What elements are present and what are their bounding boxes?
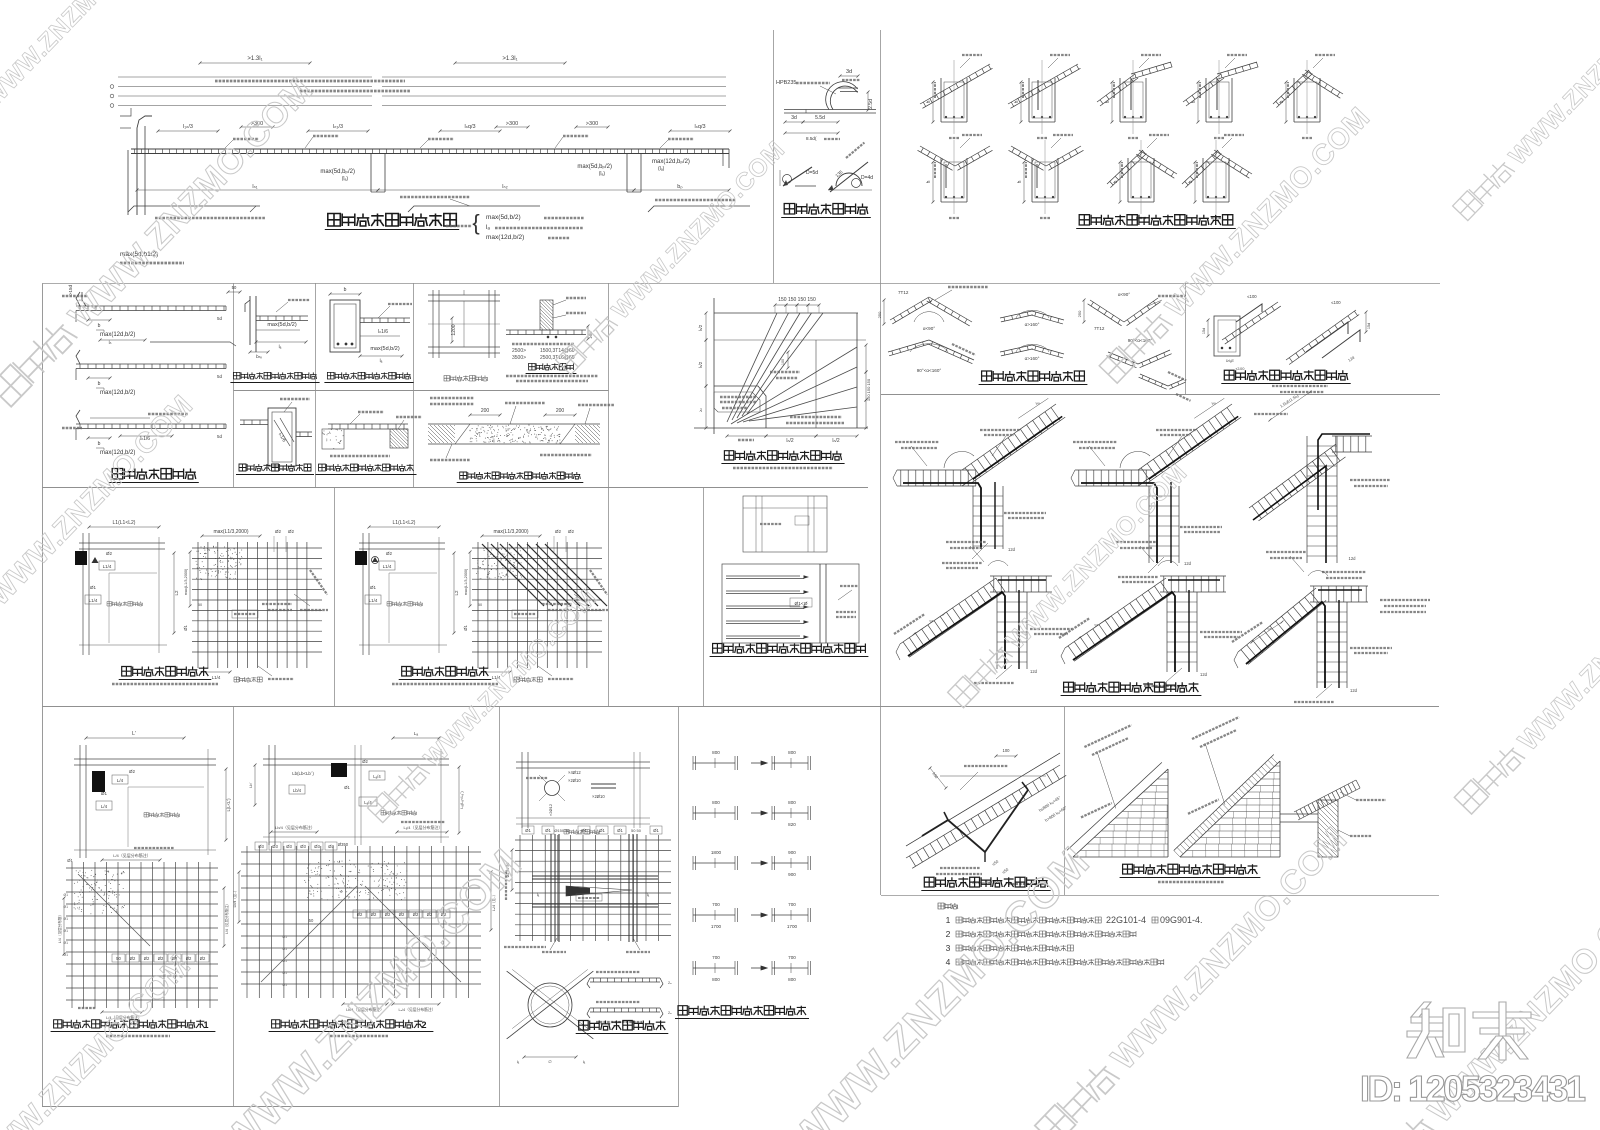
svg-text:L/4（见层分布筋注）: L/4（见层分布筋注）: [113, 852, 151, 858]
svg-text:Ø1: Ø1: [183, 625, 188, 631]
svg-text:Ø2: Ø2: [386, 551, 393, 556]
svg-text:Ø1: Ø1: [282, 959, 287, 963]
svg-text:lₙq/3: lₙq/3: [694, 124, 705, 130]
svg-text:Ø1<Ø: Ø1<Ø: [795, 601, 808, 607]
svg-text:820: 820: [788, 822, 796, 827]
svg-text:lₙ1/6: lₙ1/6: [378, 329, 388, 335]
svg-text:h: h: [1113, 180, 1119, 183]
svg-text:Lb(Lb<Lb´): Lb(Lb<Lb´): [292, 771, 314, 776]
svg-text:max(5d,bₚ/2): max(5d,bₚ/2): [577, 164, 612, 170]
svg-text:h: h: [926, 100, 932, 103]
svg-text:Ø2: Ø2: [200, 956, 206, 961]
svg-text:L/4: L/4: [101, 804, 108, 809]
svg-text:h: h: [1279, 100, 1285, 103]
svg-text:2: 2: [421, 1020, 426, 1030]
svg-text:700: 700: [712, 902, 720, 907]
svg-text:7T12: 7T12: [898, 290, 909, 295]
svg-text:Ø3: Ø3: [258, 844, 264, 849]
svg-text:Ø2: Ø2: [130, 956, 136, 961]
svg-text:Ø1: Ø1: [63, 929, 68, 933]
svg-text:lₙ: lₙ: [109, 340, 112, 345]
svg-text:Ø1: Ø1: [581, 828, 587, 833]
svg-text:250: 250: [1077, 310, 1082, 317]
svg-text:L/4: L/4: [117, 778, 124, 783]
svg-text:lₐ: lₐ: [380, 358, 383, 363]
svg-text:22G101-4: 22G101-4: [1106, 915, 1146, 925]
svg-text:Ø3: Ø3: [300, 844, 306, 849]
svg-text:≥ₙ: ≥ₙ: [698, 408, 703, 412]
svg-text:Lₐ/4（见层分布筋注）: Lₐ/4（见层分布筋注）: [398, 1007, 435, 1012]
svg-text:1700: 1700: [787, 924, 798, 929]
svg-text:7T12: 7T12: [1094, 326, 1105, 331]
svg-text:Ø2: Ø2: [275, 529, 282, 534]
svg-text:3d: 3d: [846, 69, 852, 75]
svg-text:max(L1/3,2000): max(L1/3,2000): [184, 568, 188, 595]
svg-text:l≥lₐE: l≥lₐE: [1226, 358, 1234, 363]
svg-text:15d: 15d: [1202, 328, 1206, 334]
svg-text:Ø1: Ø1: [101, 791, 108, 796]
svg-text:50: 50: [309, 918, 314, 923]
svg-text:>300: >300: [506, 121, 518, 127]
svg-text:max(12d,b/2): max(12d,b/2): [486, 234, 524, 241]
svg-text:150 150 150: 150 150 150: [866, 378, 871, 401]
svg-text:max(5d,b/2): max(5d,b/2): [486, 214, 521, 221]
svg-text:lₙ/2: lₙ/2: [698, 361, 703, 368]
svg-text:l₁ₙ/3: l₁ₙ/3: [183, 124, 193, 130]
svg-text:50: 50: [116, 956, 121, 961]
svg-text:2500>: 2500>: [512, 348, 526, 354]
svg-text:50: 50: [198, 603, 202, 607]
svg-text:α>160°: α>160°: [1025, 322, 1040, 327]
svg-text:1700: 1700: [711, 924, 722, 929]
svg-text:200: 200: [556, 408, 565, 414]
svg-text:Ø1: Ø1: [63, 893, 68, 897]
svg-text:×2Ø10: ×2Ø10: [592, 794, 605, 799]
svg-text:α<90°: α<90°: [923, 326, 935, 331]
svg-text:lₙ₁: lₙ₁: [252, 184, 257, 190]
svg-text:Ø2: Ø2: [371, 912, 377, 917]
svg-text:ID: 1205323431: ID: 1205323431: [1360, 1068, 1586, 1109]
svg-text:Ø350: Ø350: [338, 842, 349, 847]
svg-text:L1(L1<L2): L1(L1<L2): [113, 520, 136, 526]
svg-text:3500>: 3500>: [512, 355, 526, 361]
svg-text:5.5d: 5.5d: [815, 115, 825, 121]
svg-text:lₙ₃/3: lₙ₃/3: [333, 124, 343, 130]
svg-text:h: h: [1191, 100, 1197, 103]
svg-text:L1(L1<L2): L1(L1<L2): [393, 520, 416, 526]
svg-text:Ø1: Ø1: [617, 828, 623, 833]
svg-text:90°<α<160°: 90°<α<160°: [917, 368, 942, 373]
svg-text:5d: 5d: [217, 374, 223, 379]
svg-text:50: 50: [232, 285, 237, 290]
svg-text:lₙ/2: lₙ/2: [698, 324, 703, 331]
svg-text:Ø1: Ø1: [63, 953, 68, 957]
svg-text:1800: 1800: [711, 850, 722, 855]
svg-text:L': L': [132, 731, 136, 737]
svg-text:≤100: ≤100: [1331, 300, 1341, 305]
svg-text:Ø2: Ø2: [106, 551, 113, 556]
svg-text:Ø2: Ø2: [288, 529, 295, 534]
svg-text:Lₐ/4: Lₐ/4: [373, 774, 381, 779]
svg-text:3: 3: [946, 943, 951, 953]
svg-text:lₙq/3: lₙq/3: [464, 124, 475, 130]
svg-text:Ø1: Ø1: [63, 941, 68, 945]
svg-text:12d: 12d: [1184, 561, 1192, 566]
svg-text:(lₐ): (lₐ): [599, 171, 606, 177]
svg-text:Ø1: Ø1: [463, 625, 468, 631]
svg-text:800: 800: [788, 800, 796, 805]
svg-text:Ø2: Ø2: [186, 956, 192, 961]
svg-text:09G901-4.: 09G901-4.: [1160, 915, 1203, 925]
svg-text:lₙ₂: lₙ₂: [502, 184, 508, 190]
svg-text:max(5d,bₚ/2): max(5d,bₚ/2): [320, 169, 355, 175]
svg-text:Ø2: Ø2: [568, 529, 575, 534]
svg-text:max(L1/3,2000): max(L1/3,2000): [493, 529, 528, 535]
svg-text:L1/4: L1/4: [383, 564, 392, 569]
svg-text:h: h: [926, 180, 932, 183]
svg-text:Ø1: Ø1: [653, 828, 659, 833]
svg-text:2: 2: [946, 929, 951, 939]
svg-text:5d: 5d: [217, 434, 223, 439]
svg-text:Ø1: Ø1: [344, 785, 350, 790]
svg-text:h: h: [1105, 100, 1111, 103]
svg-text:b: b: [344, 287, 347, 293]
svg-text:Ø1: Ø1: [282, 935, 287, 939]
svg-text:800: 800: [712, 977, 720, 982]
svg-text:max(5d,b/2): max(5d,b/2): [267, 322, 297, 328]
svg-text:L2: L2: [454, 590, 459, 596]
svg-text:Lb/4: Lb/4: [293, 788, 302, 793]
svg-text:L/4（见层分布筋注）: L/4（见层分布筋注）: [224, 902, 229, 934]
svg-text:L/4（见层分布筋）: L/4（见层分布筋）: [57, 913, 62, 943]
svg-text:>1.3l₁: >1.3l₁: [502, 56, 517, 62]
svg-text:Ø2: Ø2: [399, 912, 405, 917]
svg-text:L1/4: L1/4: [103, 564, 112, 569]
svg-text:Ø2: Ø2: [362, 759, 368, 764]
svg-text:Lₐ/4（见层分布筋注）: Lₐ/4（见层分布筋注）: [403, 824, 442, 830]
svg-text:>15d: >15d: [68, 284, 73, 295]
svg-text:50: 50: [478, 603, 482, 607]
svg-text:250: 250: [877, 311, 882, 318]
svg-text:100: 100: [781, 359, 785, 365]
svg-text:max(5d,b/2): max(5d,b/2): [370, 346, 400, 352]
svg-text:2ₐ: 2ₐ: [668, 1011, 672, 1015]
svg-text:∅: ∅: [548, 1059, 552, 1064]
svg-text:max(12d,b/2): max(12d,b/2): [100, 390, 135, 396]
svg-text:h: h: [1017, 180, 1023, 183]
svg-text:12d: 12d: [1350, 688, 1358, 693]
svg-text:×2Ø10: ×2Ø10: [568, 778, 581, 783]
svg-text:Ø2: Ø2: [129, 769, 136, 774]
svg-text:900: 900: [788, 872, 796, 877]
svg-text:Ø2: Ø2: [385, 912, 391, 917]
svg-text:h: h: [1014, 100, 1020, 103]
svg-text:12d: 12d: [1200, 672, 1208, 677]
svg-text:900: 900: [788, 850, 796, 855]
svg-text:α<90°: α<90°: [1118, 292, 1130, 297]
svg-text:800: 800: [788, 750, 796, 755]
svg-text:100: 100: [1003, 748, 1011, 753]
svg-text:≤100: ≤100: [1247, 294, 1257, 299]
svg-text:1: 1: [946, 915, 951, 925]
svg-text:700: 700: [788, 955, 796, 960]
svg-text:Ø1: Ø1: [282, 983, 287, 987]
svg-text:Ø1: Ø1: [370, 585, 377, 590]
svg-text:×2Ø12: ×2Ø12: [548, 803, 553, 816]
svg-text:3d: 3d: [791, 115, 797, 121]
svg-text:2.5d: 2.5d: [868, 99, 874, 109]
svg-text:Ø150 50: Ø150 50: [554, 828, 570, 833]
svg-text:Ø3: Ø3: [314, 844, 320, 849]
svg-text:1500,3T14@60: 1500,3T14@60: [540, 348, 575, 354]
svg-text:15d: 15d: [1367, 323, 1371, 329]
svg-text:HPB235: HPB235: [776, 80, 797, 86]
svg-text:Ø1: Ø1: [63, 905, 68, 909]
svg-text:>300: >300: [586, 121, 598, 127]
svg-text:lₙ/2: lₙ/2: [786, 438, 793, 444]
svg-text:Ø2: Ø2: [144, 956, 150, 961]
svg-text:800: 800: [712, 800, 720, 805]
svg-text:Lₐ: Lₐ: [414, 731, 419, 736]
svg-text:lₐ: lₐ: [279, 344, 282, 349]
svg-text:Ø2: Ø2: [413, 912, 419, 917]
svg-text:Ø3: Ø3: [328, 844, 334, 849]
svg-text:D=4d: D=4d: [861, 175, 873, 181]
svg-text:bₚ: bₚ: [677, 184, 683, 190]
svg-text:700: 700: [712, 955, 720, 960]
svg-text:lₐ: lₐ: [537, 892, 540, 897]
svg-text:Ø1: Ø1: [63, 917, 68, 921]
svg-text:Ø1: Ø1: [525, 828, 531, 833]
svg-text:200: 200: [481, 408, 490, 414]
svg-text:Lb/4（见..）: Lb/4（见..）: [232, 889, 237, 908]
svg-text:b: b: [98, 381, 101, 387]
svg-text:1: 1: [203, 1020, 208, 1030]
svg-text:>1.3l₁: >1.3l₁: [247, 56, 262, 62]
svg-text:50 50: 50 50: [631, 828, 642, 833]
svg-text:L(L<L'): L(L<L'): [226, 798, 231, 812]
svg-text:12d: 12d: [1008, 547, 1016, 552]
svg-text:{: {: [472, 210, 479, 235]
svg-text:D=5d: D=5d: [806, 170, 818, 176]
svg-text:L1/4: L1/4: [212, 675, 221, 680]
svg-text:max(L1/3,2000): max(L1/3,2000): [464, 568, 468, 595]
svg-text:Ø1: Ø1: [545, 828, 551, 833]
svg-text:Ø3: Ø3: [272, 844, 278, 849]
svg-text:Ø1: Ø1: [282, 947, 287, 951]
svg-text:L2: L2: [174, 590, 179, 596]
svg-text:×4Ø12: ×4Ø12: [568, 770, 581, 775]
svg-text:Ø3: Ø3: [286, 844, 292, 849]
svg-text:max(12d,b/2): max(12d,b/2): [100, 332, 135, 338]
svg-text:L1/4: L1/4: [369, 598, 378, 603]
svg-text:2ₐ: 2ₐ: [668, 981, 672, 985]
svg-text:Ø2: Ø2: [555, 529, 562, 534]
svg-text:150 150 150 150: 150 150 150 150: [778, 297, 816, 303]
svg-text:α>160°: α>160°: [1025, 356, 1040, 361]
svg-text:12d: 12d: [1349, 556, 1357, 561]
svg-text:Lb/4（见层分布筋注）: Lb/4（见层分布筋注）: [275, 824, 315, 830]
svg-text:700: 700: [788, 902, 796, 907]
svg-text:lₐ: lₐ: [486, 224, 490, 231]
svg-text:800: 800: [712, 750, 720, 755]
svg-text:lₙ/2: lₙ/2: [832, 438, 839, 444]
svg-text:Lb´: Lb´: [248, 782, 253, 788]
svg-text:(lₐ): (lₐ): [342, 176, 349, 182]
svg-text:L1/4: L1/4: [89, 598, 98, 603]
svg-text:(lₐ): (lₐ): [658, 166, 665, 172]
svg-text:bₙₓ: bₙₓ: [256, 354, 262, 359]
svg-text:Ø1: Ø1: [599, 828, 605, 833]
svg-text:800: 800: [788, 977, 796, 982]
svg-text:12d: 12d: [1030, 669, 1038, 674]
svg-text:lₐ: lₐ: [647, 892, 650, 897]
svg-text:Ø2: Ø2: [357, 912, 363, 917]
svg-text:h: h: [1188, 180, 1194, 183]
svg-text:Ø1: Ø1: [90, 585, 97, 590]
svg-text:b: b: [98, 441, 101, 447]
svg-text:≤100: ≤100: [1236, 366, 1246, 371]
svg-text:max(L1/3,2000): max(L1/3,2000): [213, 529, 248, 535]
svg-text:Lₐ(Lₐ<Lₐ´): Lₐ(Lₐ<Lₐ´): [459, 791, 464, 809]
svg-text:Ø1: Ø1: [67, 858, 73, 863]
svg-text:5d: 5d: [217, 316, 223, 321]
svg-text:max(12d,bₚ/2): max(12d,bₚ/2): [652, 159, 690, 165]
svg-text:8.5d(: 8.5d(: [806, 136, 817, 141]
svg-text:Ø1: Ø1: [282, 971, 287, 975]
